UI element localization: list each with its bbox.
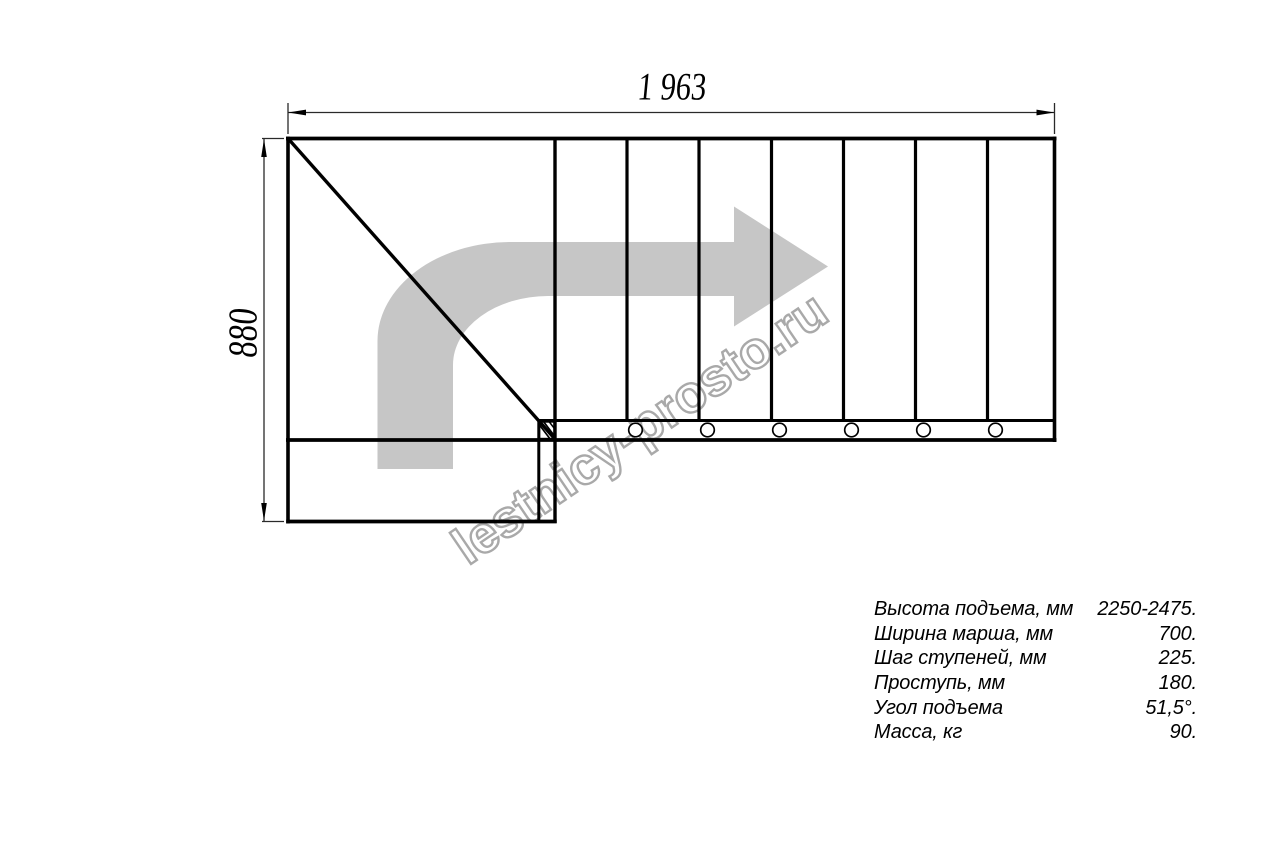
svg-text:880: 880 xyxy=(221,306,266,360)
svg-text:51,5°.: 51,5°. xyxy=(1145,697,1197,719)
svg-text:225.: 225. xyxy=(1158,647,1197,669)
svg-text:180.: 180. xyxy=(1159,672,1197,694)
svg-text:Масса, кг: Масса, кг xyxy=(874,721,962,743)
svg-text:700.: 700. xyxy=(1159,623,1197,645)
svg-text:Угол подъема: Угол подъема xyxy=(873,697,1003,719)
svg-text:Проступь, мм: Проступь, мм xyxy=(874,672,1006,694)
svg-text:Ширина марша, мм: Ширина марша, мм xyxy=(874,623,1054,645)
svg-text:1 963: 1 963 xyxy=(636,65,709,108)
svg-text:2250-2475.: 2250-2475. xyxy=(1096,598,1197,620)
svg-text:90.: 90. xyxy=(1170,721,1197,743)
svg-text:Шаг ступеней, мм: Шаг ступеней, мм xyxy=(874,647,1047,669)
svg-text:Высота подъема, мм: Высота подъема, мм xyxy=(874,598,1074,620)
